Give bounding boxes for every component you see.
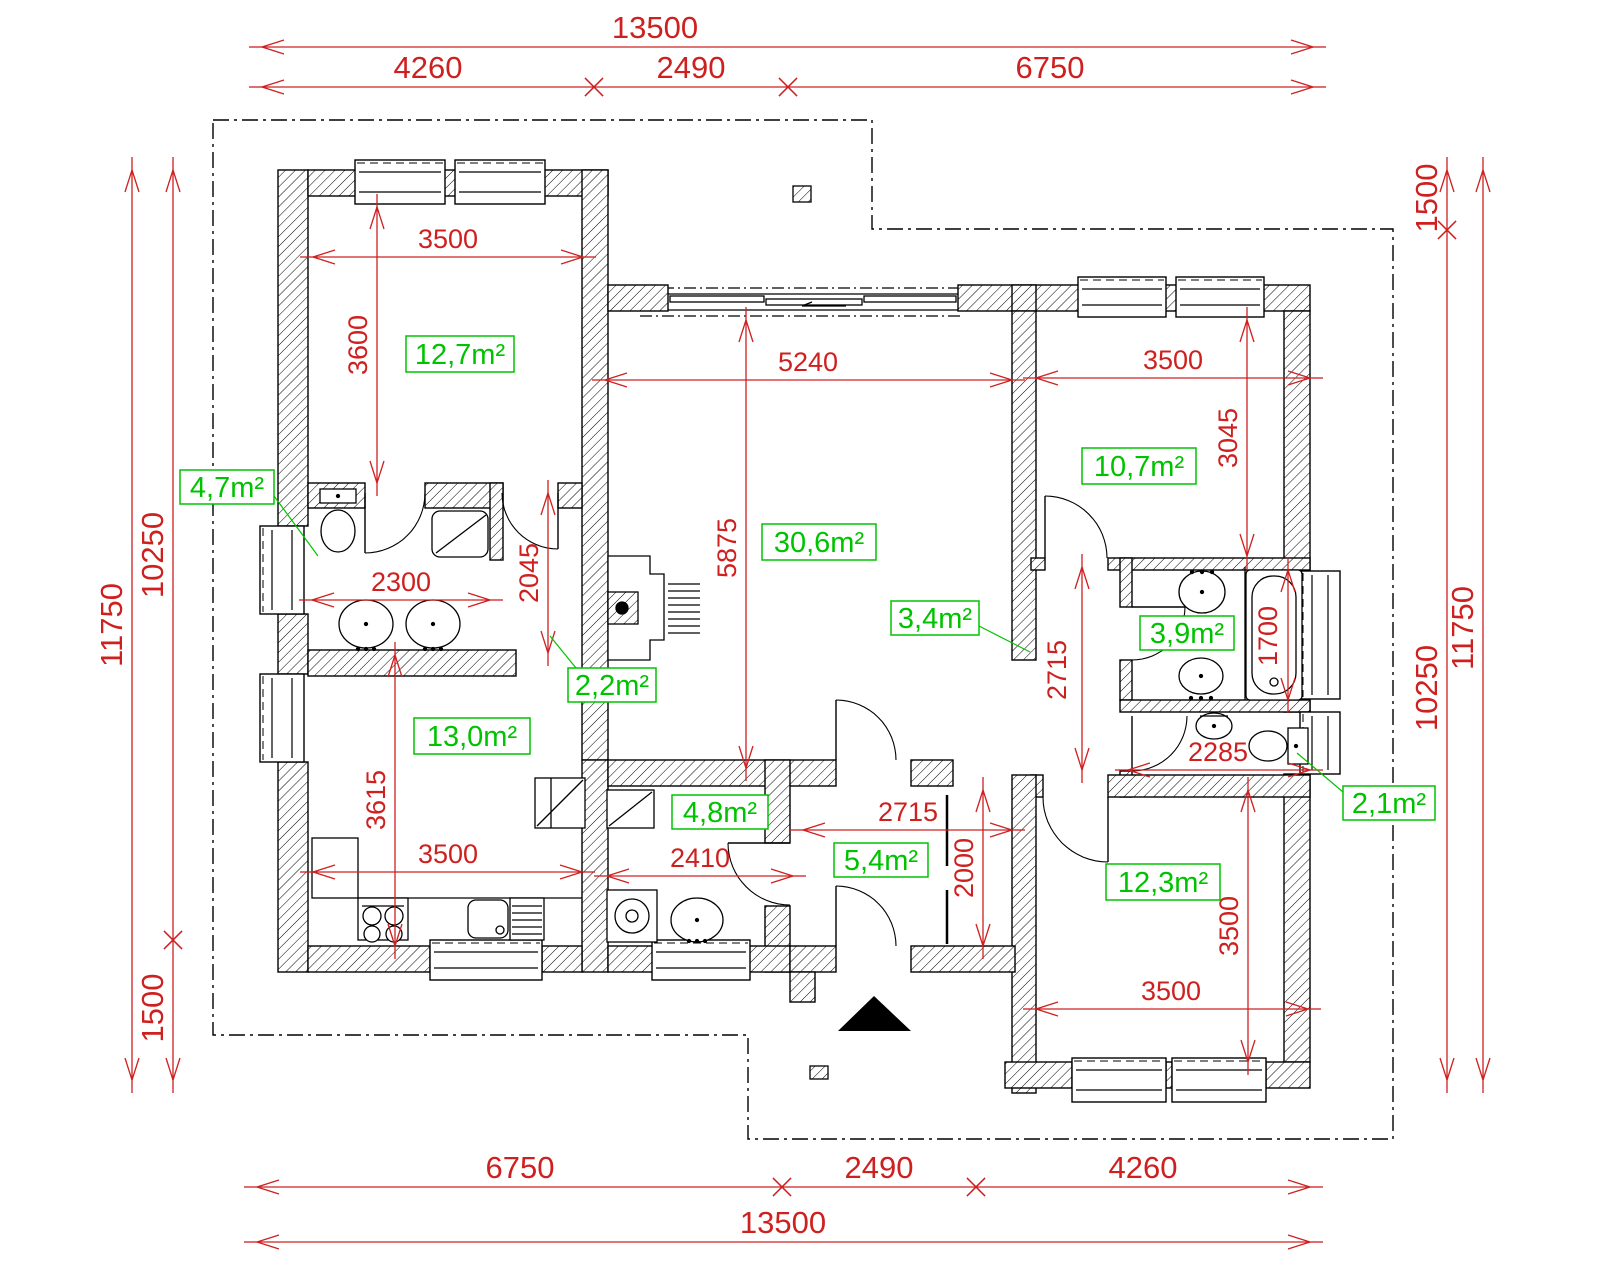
window <box>652 940 750 980</box>
wall <box>1108 558 1310 570</box>
dimension-value: 5240 <box>778 347 838 377</box>
dimension-value: 2715 <box>1042 640 1072 700</box>
room-area-value: 3,4m² <box>898 603 972 635</box>
dimension-value: 11750 <box>94 583 129 667</box>
dimension-value: 2490 <box>657 50 726 85</box>
dimension-value: 4260 <box>1109 1150 1178 1185</box>
wall <box>1120 558 1132 607</box>
wall <box>1012 311 1036 660</box>
window <box>260 526 304 614</box>
dimension-value: 10250 <box>135 512 170 598</box>
wall <box>582 760 608 972</box>
dimension-value: 2715 <box>878 797 938 827</box>
floor-plan-page: 1350042602490675067502490426013500117501… <box>0 0 1600 1280</box>
kitchen-sink <box>468 898 544 940</box>
wall <box>278 614 308 674</box>
utility-sink <box>671 898 723 943</box>
dimension-value: 3500 <box>1141 976 1201 1006</box>
wall <box>1284 774 1310 1062</box>
wall <box>558 483 582 508</box>
dimension-value: 1700 <box>1253 606 1283 666</box>
wall <box>1031 558 1045 570</box>
wall <box>608 285 668 311</box>
room-area-value: 30,6m² <box>774 527 865 559</box>
wall <box>1012 285 1036 311</box>
dimension-value: 6750 <box>486 1150 555 1185</box>
wc-sink <box>1196 713 1232 739</box>
window <box>455 160 545 204</box>
room-area-value: 4,7m² <box>190 472 264 504</box>
dimension-value: 3615 <box>361 770 391 830</box>
room-area-label: 3,9m² <box>1140 616 1234 650</box>
wall <box>1120 660 1132 700</box>
window <box>430 940 542 980</box>
dimension-value: 3045 <box>1213 408 1243 468</box>
wall <box>790 972 815 1002</box>
wall <box>1031 285 1082 311</box>
dimension-value: 3500 <box>418 839 478 869</box>
dimension-value: 3500 <box>1214 896 1244 956</box>
bath-washbasin <box>1179 571 1225 614</box>
dimension-value: 4260 <box>394 50 463 85</box>
floor-plan-drawing: 1350042602490675067502490426013500117501… <box>0 0 1600 1280</box>
room-area-value: 5,4m² <box>844 845 918 877</box>
wall <box>308 170 360 196</box>
dimension-value: 2285 <box>1188 737 1248 767</box>
window <box>1176 277 1264 317</box>
toilet <box>320 489 356 552</box>
washing-machine <box>607 890 657 942</box>
dimension-value: 2410 <box>670 843 730 873</box>
room-area-label: 12,7m² <box>406 336 514 372</box>
room-area-value: 10,7m² <box>1094 451 1185 483</box>
wall <box>747 946 790 972</box>
wall <box>308 946 430 972</box>
wall <box>1108 775 1310 797</box>
window <box>1078 277 1166 317</box>
dimension-value: 3600 <box>343 315 373 375</box>
wall <box>278 762 308 972</box>
wall <box>542 946 582 972</box>
wall <box>608 760 836 786</box>
dimension-value: 2300 <box>371 567 431 597</box>
dimension-value: 2045 <box>514 543 544 603</box>
window <box>260 674 304 762</box>
room-area-label: 12,3m² <box>1106 864 1220 900</box>
dimension-value: 1500 <box>135 974 170 1043</box>
dimension-value: 13500 <box>740 1205 826 1240</box>
stove <box>358 898 408 942</box>
dimension-value: 3500 <box>1143 345 1203 375</box>
room-area-value: 12,3m² <box>1118 867 1209 899</box>
room-area-label: 30,6m² <box>762 524 876 560</box>
wall <box>490 483 503 560</box>
wall <box>790 946 836 972</box>
room-area-value: 4,8m² <box>683 797 757 829</box>
dimension-value: 13500 <box>612 10 698 45</box>
utility-cabinet <box>607 790 654 828</box>
wall <box>308 650 516 676</box>
dimension-value: 6750 <box>1016 50 1085 85</box>
porch-column <box>810 1066 828 1079</box>
dimension-value: 2490 <box>845 1150 914 1185</box>
room-area-label: 13,0m² <box>414 718 530 754</box>
wall <box>1260 285 1310 311</box>
room-area-label: 5,4m² <box>834 843 928 877</box>
window <box>1300 571 1340 699</box>
wall <box>1012 775 1036 1093</box>
wall <box>1266 1062 1310 1088</box>
wc-toilet <box>1249 728 1308 764</box>
wall <box>278 170 308 526</box>
room-area-value: 2,1m² <box>1352 788 1426 820</box>
window <box>1172 1058 1266 1102</box>
wall <box>1120 700 1310 712</box>
wall <box>911 946 1015 972</box>
room-area-value: 12,7m² <box>415 339 506 371</box>
room-area-label: 10,7m² <box>1082 448 1196 484</box>
dimension-value: 3500 <box>418 224 478 254</box>
fridge <box>535 778 585 828</box>
dimension-value: 5875 <box>712 518 742 578</box>
wall <box>608 946 655 972</box>
room-area-value: 3,9m² <box>1150 618 1224 650</box>
wall <box>911 760 953 786</box>
wall <box>1166 1062 1172 1088</box>
porch-column <box>793 186 811 202</box>
room-area-value: 2,2m² <box>575 670 649 702</box>
room-area-value: 13,0m² <box>427 721 518 753</box>
dimension-value: 2000 <box>949 838 979 898</box>
window <box>355 160 445 204</box>
shower <box>432 511 488 557</box>
dimension-value: 11750 <box>1445 586 1480 670</box>
wall <box>1005 1062 1072 1088</box>
dimension-value: 10250 <box>1409 645 1444 731</box>
wall <box>1284 311 1310 573</box>
room-area-label: 4,8m² <box>672 795 768 829</box>
window <box>1072 1058 1166 1102</box>
